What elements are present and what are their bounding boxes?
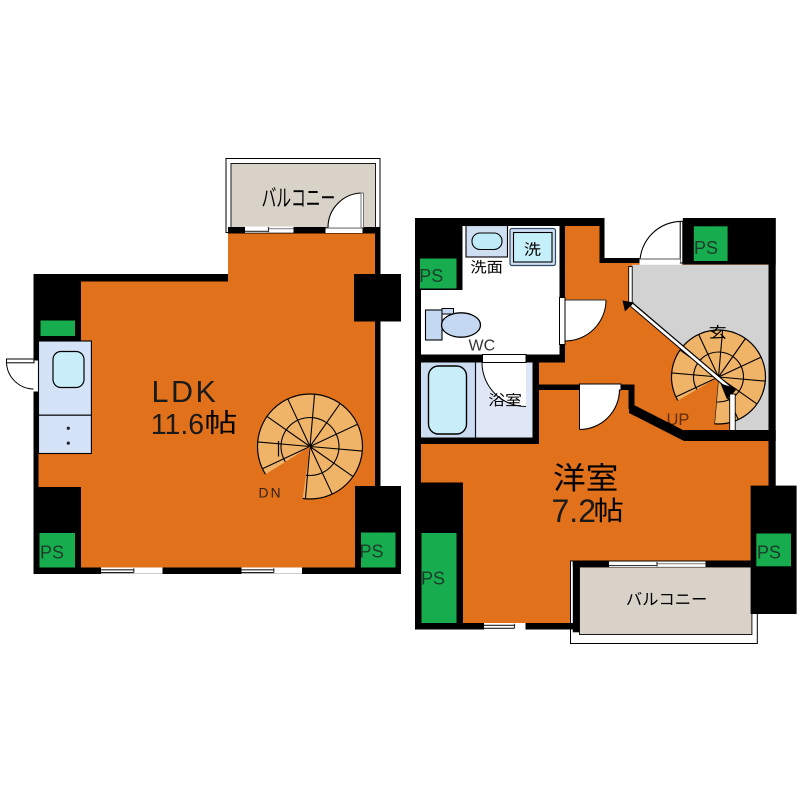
svg-text:DN: DN — [259, 486, 283, 501]
svg-text:PS: PS — [757, 542, 781, 562]
svg-text:7.2: 7.2 — [552, 493, 596, 529]
svg-text:11.6: 11.6 — [151, 409, 204, 441]
svg-text:WC: WC — [469, 338, 496, 355]
svg-text:PS: PS — [40, 542, 64, 562]
svg-text:LDK: LDK — [152, 375, 219, 409]
svg-text:PS: PS — [421, 568, 445, 588]
svg-text:PS: PS — [694, 238, 718, 258]
svg-text:PS: PS — [360, 542, 384, 562]
svg-text:PS: PS — [419, 266, 443, 286]
